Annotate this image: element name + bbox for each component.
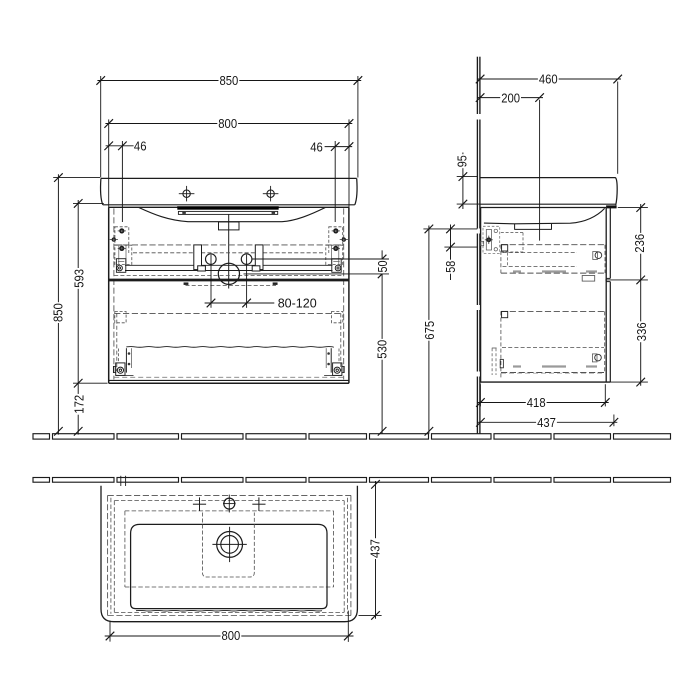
svg-text:50: 50 bbox=[375, 261, 390, 273]
svg-text:800: 800 bbox=[218, 116, 237, 131]
svg-text:80-120: 80-120 bbox=[278, 296, 317, 311]
svg-text:850: 850 bbox=[220, 73, 239, 88]
svg-text:593: 593 bbox=[71, 269, 86, 288]
svg-text:46: 46 bbox=[310, 139, 323, 154]
svg-text:236: 236 bbox=[632, 234, 647, 253]
svg-text:46: 46 bbox=[134, 138, 147, 153]
svg-text:437: 437 bbox=[537, 415, 556, 430]
svg-text:95: 95 bbox=[454, 155, 469, 167]
svg-text:418: 418 bbox=[527, 395, 546, 410]
svg-text:437: 437 bbox=[368, 539, 383, 558]
svg-text:460: 460 bbox=[539, 72, 558, 87]
svg-text:800: 800 bbox=[222, 628, 241, 643]
svg-text:530: 530 bbox=[374, 340, 389, 359]
svg-text:172: 172 bbox=[71, 395, 86, 414]
svg-text:850: 850 bbox=[50, 303, 65, 322]
svg-text:58: 58 bbox=[443, 261, 458, 273]
svg-text:200: 200 bbox=[501, 90, 520, 105]
svg-text:675: 675 bbox=[422, 321, 437, 340]
svg-text:336: 336 bbox=[634, 322, 649, 341]
